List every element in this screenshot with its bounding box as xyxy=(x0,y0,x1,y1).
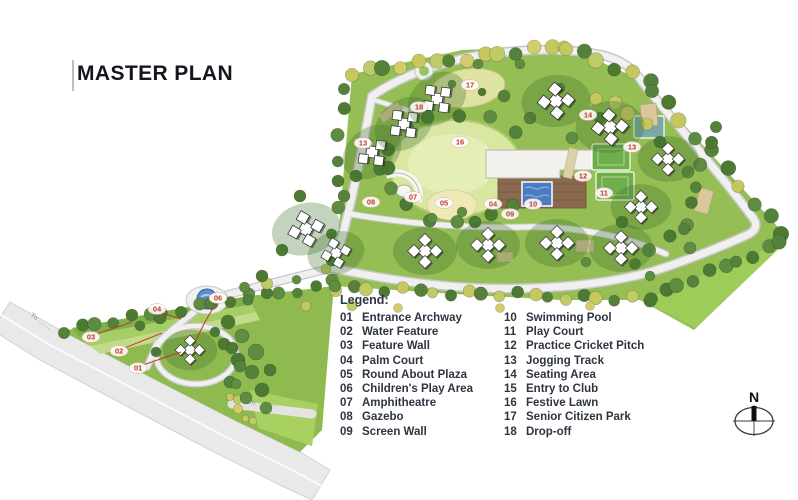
tree-icon xyxy=(478,88,486,96)
tree-icon xyxy=(443,55,456,68)
tree-icon xyxy=(226,342,238,354)
legend-item-label: Gazebo xyxy=(362,410,404,424)
tree-icon xyxy=(498,90,510,102)
map-marker-number: 11 xyxy=(600,189,608,198)
tree-icon xyxy=(645,84,659,98)
map-marker-number: 04 xyxy=(153,305,162,314)
legend-item-number: 05 xyxy=(340,368,362,382)
legend-item-number: 11 xyxy=(504,325,526,339)
map-marker: 03 xyxy=(82,332,100,343)
building-cluster xyxy=(456,221,520,269)
map-marker: 17 xyxy=(461,80,479,91)
tree-icon xyxy=(210,327,220,337)
tree-icon xyxy=(272,287,285,300)
map-marker-number: 03 xyxy=(87,333,95,342)
legend-item-number: 15 xyxy=(504,382,526,396)
map-marker-number: 06 xyxy=(214,294,222,303)
legend-column-2: 10Swimming Pool11Play Court12Practice Cr… xyxy=(504,311,644,439)
legend-item-label: Jogging Track xyxy=(526,354,604,368)
legend: Legend: 01Entrance Archway02Water Featur… xyxy=(340,293,644,439)
tree-icon xyxy=(671,113,687,129)
tree-icon xyxy=(690,182,701,193)
tree-icon xyxy=(581,257,591,267)
building-cluster xyxy=(589,224,653,272)
map-marker-number: 13 xyxy=(359,139,367,148)
legend-item-label: Entrance Archway xyxy=(362,311,462,325)
tree-icon xyxy=(175,306,187,318)
legend-item: 17Senior Citizen Park xyxy=(504,410,644,424)
map-marker: 08 xyxy=(362,197,380,208)
legend-item-number: 13 xyxy=(504,354,526,368)
tree-icon xyxy=(345,68,359,82)
tree-icon xyxy=(457,207,467,217)
tree-icon xyxy=(473,59,483,69)
legend-item-label: Festive Lawn xyxy=(526,396,598,410)
map-marker-number: 02 xyxy=(115,347,123,356)
legend-item-number: 03 xyxy=(340,339,362,353)
tree-icon xyxy=(338,190,350,202)
tree-icon xyxy=(427,213,437,223)
map-marker-number: 13 xyxy=(628,143,636,152)
tree-icon xyxy=(684,242,696,254)
legend-item: 02Water Feature xyxy=(340,325,504,339)
tree-icon xyxy=(58,327,70,339)
legend-item-label: Entry to Club xyxy=(526,382,598,396)
legend-item-label: Palm Court xyxy=(362,354,423,368)
page-title: MASTER PLAN xyxy=(77,62,233,86)
legend-item-number: 07 xyxy=(340,396,362,410)
tree-icon xyxy=(374,60,390,76)
tree-icon xyxy=(76,319,89,332)
map-marker: 18 xyxy=(410,102,428,113)
tree-icon xyxy=(748,198,762,212)
map-marker-number: 10 xyxy=(529,200,537,209)
tree-icon xyxy=(242,415,249,422)
legend-item-number: 01 xyxy=(340,311,362,325)
legend-item-label: Screen Wall xyxy=(362,425,427,439)
tree-icon xyxy=(566,132,578,144)
legend-item: 03Feature Wall xyxy=(340,339,504,353)
legend-item-number: 17 xyxy=(504,410,526,424)
tree-icon xyxy=(484,110,497,123)
legend-item: 06Children's Play Area xyxy=(340,382,504,396)
legend-item-label: Feature Wall xyxy=(362,339,430,353)
legend-item-number: 09 xyxy=(340,425,362,439)
tree-icon xyxy=(732,180,745,193)
legend-item-number: 10 xyxy=(504,311,526,325)
tree-icon xyxy=(730,256,742,268)
building-cluster xyxy=(163,330,217,371)
tree-icon xyxy=(559,42,573,56)
tree-icon xyxy=(338,83,350,95)
map-marker-number: 12 xyxy=(579,172,587,181)
tree-icon xyxy=(527,40,541,54)
tree-icon xyxy=(292,275,301,284)
legend-item: 12Practice Cricket Pitch xyxy=(504,339,644,353)
map-marker-number: 09 xyxy=(506,210,514,219)
building-cluster xyxy=(611,184,672,230)
tree-icon xyxy=(685,197,697,209)
tree-icon xyxy=(703,264,716,277)
map-marker-number: 14 xyxy=(584,111,593,120)
map-marker-number: 08 xyxy=(367,198,375,207)
map-marker-number: 17 xyxy=(466,81,474,90)
map-marker: 02 xyxy=(110,346,128,357)
map-marker-number: 01 xyxy=(134,364,142,373)
tree-icon xyxy=(221,315,235,329)
map-marker: 16 xyxy=(451,137,469,148)
tree-icon xyxy=(669,278,684,293)
legend-item: 15Entry to Club xyxy=(504,382,644,396)
map-marker: 12 xyxy=(574,171,592,182)
tree-icon xyxy=(194,298,207,311)
master-plan-page: 01020304060807050409101318171614131211 T… xyxy=(0,0,798,500)
tree-icon xyxy=(687,275,699,287)
legend-item-label: Drop-off xyxy=(526,425,571,439)
map-marker: 09 xyxy=(501,209,519,220)
tree-icon xyxy=(764,209,779,224)
tree-icon xyxy=(772,235,787,250)
tree-icon xyxy=(151,347,161,357)
legend-item-label: Senior Citizen Park xyxy=(526,410,631,424)
tree-icon xyxy=(710,121,722,133)
tree-icon xyxy=(88,317,102,331)
legend-item-number: 16 xyxy=(504,396,526,410)
tree-icon xyxy=(234,360,246,372)
legend-item: 11Play Court xyxy=(504,325,644,339)
tree-icon xyxy=(264,364,276,376)
tree-icon xyxy=(332,175,344,187)
tree-icon xyxy=(338,102,351,115)
tree-icon xyxy=(235,329,249,343)
tree-icon xyxy=(126,309,138,321)
tree-icon xyxy=(451,215,464,228)
map-marker-number: 07 xyxy=(409,193,417,202)
tree-icon xyxy=(746,251,759,264)
tree-icon xyxy=(412,54,426,68)
legend-item-number: 12 xyxy=(504,339,526,353)
tree-icon xyxy=(645,271,655,281)
legend-item-label: Amphitheatre xyxy=(362,396,436,410)
map-marker: 04 xyxy=(484,199,502,210)
tree-icon xyxy=(135,321,145,331)
tree-icon xyxy=(329,280,341,292)
tree-icon xyxy=(256,270,268,282)
map-marker: 01 xyxy=(129,363,147,374)
map-marker: 11 xyxy=(595,188,613,199)
tree-icon xyxy=(292,288,302,298)
map-marker: 10 xyxy=(524,199,542,210)
legend-item: 14Seating Area xyxy=(504,368,644,382)
legend-item-number: 18 xyxy=(504,425,526,439)
legend-item: 18Drop-off xyxy=(504,425,644,439)
map-marker: 14 xyxy=(579,110,597,121)
map-marker: 05 xyxy=(435,198,453,209)
tree-icon xyxy=(397,282,409,294)
map-marker: 06 xyxy=(209,293,227,304)
map-marker-number: 18 xyxy=(415,103,423,112)
map-marker-number: 05 xyxy=(440,199,448,208)
legend-item-number: 14 xyxy=(504,368,526,382)
legend-item: 05Round About Plaza xyxy=(340,368,504,382)
tree-icon xyxy=(233,404,243,414)
legend-item: 01Entrance Archway xyxy=(340,311,504,325)
building-cluster xyxy=(638,136,699,182)
tree-icon xyxy=(239,282,250,293)
building-cluster xyxy=(525,219,589,267)
tree-icon xyxy=(515,59,525,69)
tree-icon xyxy=(509,48,522,61)
legend-item-label: Round About Plaza xyxy=(362,368,467,382)
legend-item-number: 08 xyxy=(340,410,362,424)
tree-icon xyxy=(626,65,640,79)
map-marker: 07 xyxy=(404,192,422,203)
legend-item-label: Play Court xyxy=(526,325,584,339)
tree-icon xyxy=(608,63,621,76)
map-marker: 04 xyxy=(148,304,166,315)
legend-item-number: 06 xyxy=(340,382,362,396)
tree-icon xyxy=(311,281,322,292)
tree-icon xyxy=(255,383,269,397)
map-marker-number: 16 xyxy=(456,138,464,147)
tree-icon xyxy=(721,161,736,176)
legend-item-label: Water Feature xyxy=(362,325,438,339)
legend-item: 08Gazebo xyxy=(340,410,504,424)
legend-item-number: 02 xyxy=(340,325,362,339)
legend-item: 16Festive Lawn xyxy=(504,396,644,410)
tree-icon xyxy=(705,136,718,149)
tree-icon xyxy=(332,156,343,167)
compass-north-label: N xyxy=(749,389,759,405)
legend-column-1: 01Entrance Archway02Water Feature03Featu… xyxy=(340,311,504,439)
tree-icon xyxy=(485,208,498,221)
tree-icon xyxy=(348,280,361,293)
tree-icon xyxy=(331,128,345,142)
tree-icon xyxy=(226,393,234,401)
legend-item: 10Swimming Pool xyxy=(504,311,644,325)
tree-icon xyxy=(689,132,702,145)
legend-item: 07Amphitheatre xyxy=(340,396,504,410)
tree-icon xyxy=(460,54,474,68)
tree-icon xyxy=(294,190,306,202)
legend-item-label: Swimming Pool xyxy=(526,311,612,325)
legend-item-label: Seating Area xyxy=(526,368,596,382)
building-cluster xyxy=(393,227,457,275)
legend-item: 13Jogging Track xyxy=(504,354,644,368)
tree-icon xyxy=(664,230,677,243)
tree-icon xyxy=(645,293,658,306)
tree-icon xyxy=(301,301,311,311)
tree-icon xyxy=(385,182,398,195)
tree-icon xyxy=(231,379,241,389)
tree-icon xyxy=(394,62,407,75)
tree-icon xyxy=(661,95,676,110)
legend-item-label: Children's Play Area xyxy=(362,382,473,396)
map-marker: 13 xyxy=(623,142,641,153)
tree-icon xyxy=(243,295,254,306)
tree-icon xyxy=(245,365,259,379)
legend-item-label: Practice Cricket Pitch xyxy=(526,339,644,353)
tree-icon xyxy=(588,53,604,69)
tree-icon xyxy=(678,223,690,235)
tree-icon xyxy=(509,126,522,139)
compass: N xyxy=(733,389,775,436)
tree-icon xyxy=(248,344,264,360)
legend-item-number: 04 xyxy=(340,354,362,368)
tree-icon xyxy=(489,46,505,62)
legend-item: 04Palm Court xyxy=(340,354,504,368)
legend-item: 09Screen Wall xyxy=(340,425,504,439)
tree-icon xyxy=(249,417,257,425)
map-marker-number: 04 xyxy=(489,200,498,209)
title-rule xyxy=(72,60,74,91)
legend-heading: Legend: xyxy=(340,293,644,307)
map-marker: 13 xyxy=(354,138,372,149)
